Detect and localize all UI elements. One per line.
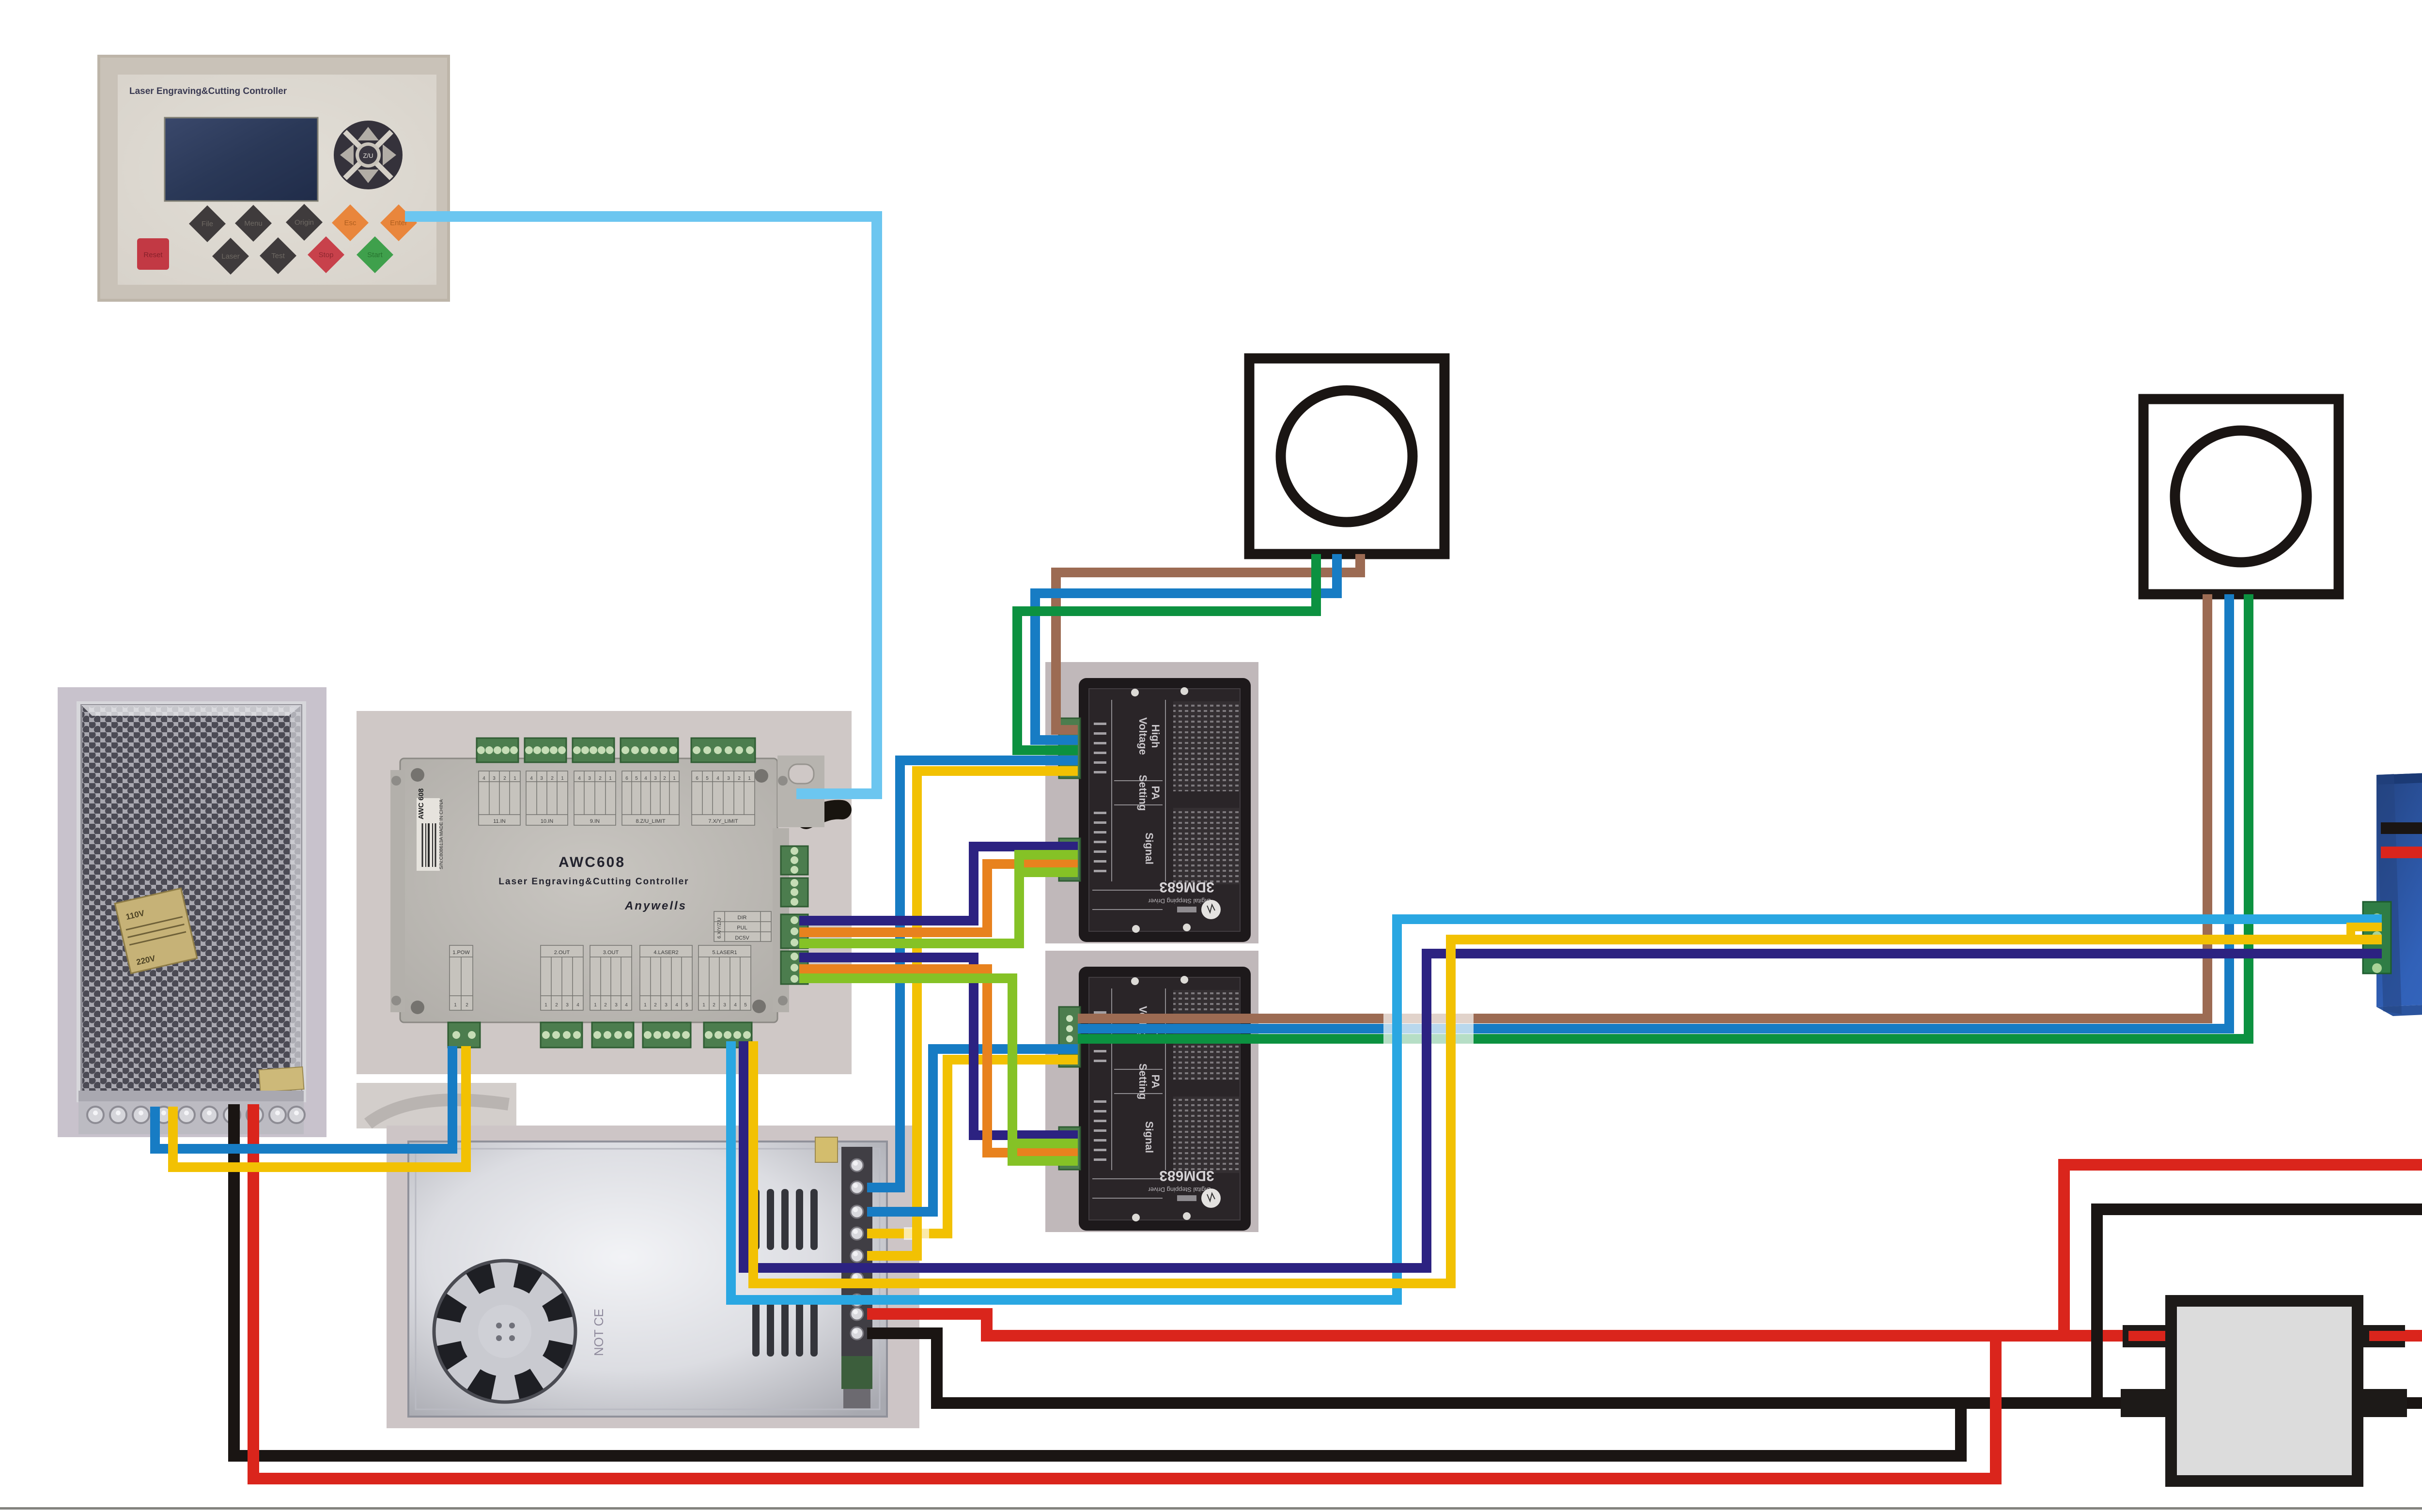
svg-text:2: 2 <box>713 1003 715 1008</box>
svg-text:3: 3 <box>723 1003 726 1008</box>
svg-text:3DM683: 3DM683 <box>1159 1168 1214 1184</box>
svg-text:AWC608: AWC608 <box>559 854 625 870</box>
svg-text:1: 1 <box>594 1003 597 1008</box>
svg-text:S/N:C808613A MADE IN CHINA: S/N:C808613A MADE IN CHINA <box>439 799 444 869</box>
svg-text:Start: Start <box>367 251 383 259</box>
svg-text:Z/U: Z/U <box>363 152 373 159</box>
svg-text:1: 1 <box>748 776 751 781</box>
svg-text:3: 3 <box>493 776 496 781</box>
svg-text:6: 6 <box>696 776 699 781</box>
svg-text:Signal: Signal <box>1143 833 1155 864</box>
svg-text:6.X/Y/Z/U: 6.X/Y/Z/U <box>717 918 722 939</box>
svg-text:Digital Stepping Driver: Digital Stepping Driver <box>1148 897 1211 905</box>
svg-text:1: 1 <box>702 1003 705 1008</box>
svg-text:4: 4 <box>734 1003 737 1008</box>
svg-text:PUL: PUL <box>737 925 747 931</box>
svg-text:4: 4 <box>530 776 533 781</box>
svg-text:High: High <box>1149 725 1162 748</box>
svg-text:4: 4 <box>625 1003 628 1008</box>
svg-text:2: 2 <box>551 776 554 781</box>
svg-text:Setting: Setting <box>1137 775 1149 811</box>
svg-text:2: 2 <box>663 776 666 781</box>
svg-text:2: 2 <box>604 1003 607 1008</box>
svg-text:2: 2 <box>654 1003 657 1008</box>
svg-text:Digital Stepping Driver: Digital Stepping Driver <box>1148 1186 1211 1193</box>
svg-text:1: 1 <box>644 1003 647 1008</box>
svg-text:2: 2 <box>599 776 602 781</box>
svg-text:Voltage: Voltage <box>1137 717 1149 755</box>
svg-text:3: 3 <box>566 1003 569 1008</box>
svg-text:4: 4 <box>716 776 719 781</box>
svg-text:5: 5 <box>744 1003 747 1008</box>
svg-text:6: 6 <box>625 776 628 781</box>
svg-text:2.OUT: 2.OUT <box>554 950 570 956</box>
svg-text:Test: Test <box>271 252 285 260</box>
svg-text:5: 5 <box>706 776 709 781</box>
svg-text:2: 2 <box>466 1003 468 1008</box>
svg-text:File: File <box>202 220 213 228</box>
svg-text:3: 3 <box>665 1003 668 1008</box>
svg-text:Esc: Esc <box>344 219 357 227</box>
svg-text:5: 5 <box>635 776 638 781</box>
svg-text:5.LASER1: 5.LASER1 <box>712 950 737 956</box>
svg-text:1: 1 <box>561 776 564 781</box>
svg-text:9.IN: 9.IN <box>590 818 600 824</box>
svg-text:AWC 608: AWC 608 <box>417 788 425 819</box>
svg-text:3.OUT: 3.OUT <box>603 950 619 956</box>
svg-text:1: 1 <box>513 776 516 781</box>
svg-text:1: 1 <box>544 1003 547 1008</box>
svg-text:4: 4 <box>675 1003 678 1008</box>
svg-text:1.POW: 1.POW <box>452 950 470 956</box>
svg-text:7.X/Y_LIMIT: 7.X/Y_LIMIT <box>708 818 738 824</box>
svg-text:10.IN: 10.IN <box>541 818 553 824</box>
svg-text:3: 3 <box>540 776 543 781</box>
svg-text:NOT CE: NOT CE <box>591 1309 606 1356</box>
svg-text:5: 5 <box>685 1003 688 1008</box>
svg-text:Reset: Reset <box>143 251 163 259</box>
svg-text:4: 4 <box>644 776 647 781</box>
svg-text:Menu: Menu <box>244 219 263 228</box>
svg-text:Signal: Signal <box>1143 1121 1155 1153</box>
svg-text:Laser Engraving&Cutting Contro: Laser Engraving&Cutting Controller <box>129 86 287 96</box>
svg-text:4: 4 <box>482 776 485 781</box>
svg-text:PA: PA <box>1149 786 1162 800</box>
svg-text:3DM683: 3DM683 <box>1159 879 1214 895</box>
svg-text:3: 3 <box>727 776 730 781</box>
svg-text:DC5V: DC5V <box>735 935 749 941</box>
svg-text:4: 4 <box>578 776 581 781</box>
svg-text:Origin: Origin <box>295 218 314 227</box>
svg-text:3: 3 <box>588 776 591 781</box>
svg-text:Stop: Stop <box>319 251 334 259</box>
svg-text:8.Z/U_LIMIT: 8.Z/U_LIMIT <box>636 818 665 824</box>
svg-text:1: 1 <box>609 776 612 781</box>
svg-text:1: 1 <box>673 776 676 781</box>
svg-text:2: 2 <box>555 1003 558 1008</box>
svg-text:2: 2 <box>738 776 741 781</box>
svg-text:DIR: DIR <box>738 915 747 921</box>
svg-text:Setting: Setting <box>1137 1064 1149 1100</box>
svg-text:4: 4 <box>576 1003 579 1008</box>
svg-text:11.IN: 11.IN <box>493 818 506 824</box>
svg-text:3: 3 <box>615 1003 618 1008</box>
svg-text:2: 2 <box>503 776 506 781</box>
svg-text:4.LASER2: 4.LASER2 <box>653 950 678 956</box>
svg-text:Laser: Laser <box>221 252 240 261</box>
svg-text:PA: PA <box>1149 1075 1162 1089</box>
svg-text:Laser Engraving&Cutting Contro: Laser Engraving&Cutting Controller <box>498 877 689 887</box>
svg-text:Anywells: Anywells <box>624 899 687 912</box>
svg-text:1: 1 <box>454 1003 457 1008</box>
svg-text:Enter: Enter <box>390 219 407 227</box>
svg-text:3: 3 <box>654 776 657 781</box>
